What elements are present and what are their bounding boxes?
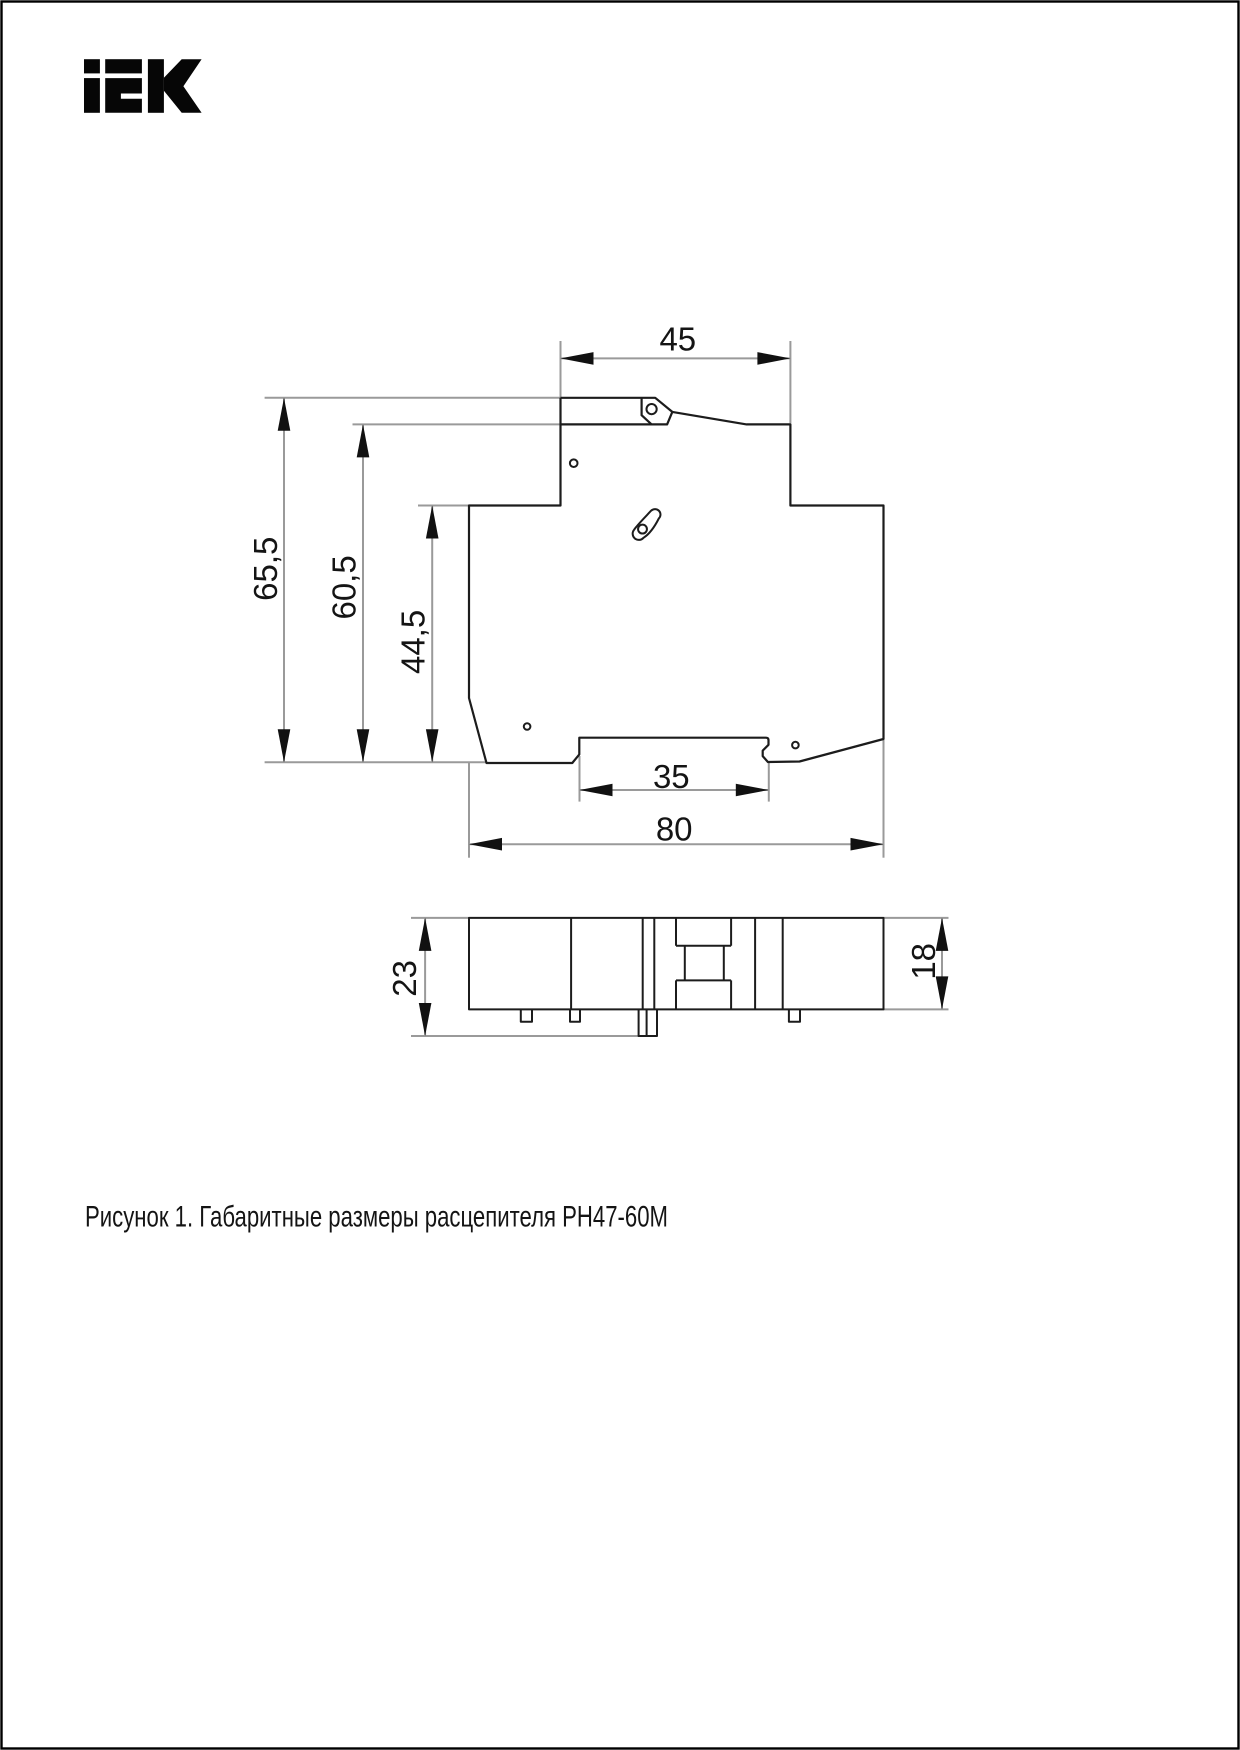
svg-text:45: 45 — [659, 321, 696, 358]
svg-text:Рисунок 1. Габаритные размеры: Рисунок 1. Габаритные размеры расцепител… — [85, 1201, 668, 1234]
svg-text:80: 80 — [656, 810, 693, 847]
svg-text:44,5: 44,5 — [395, 610, 432, 674]
svg-text:60,5: 60,5 — [325, 555, 362, 619]
svg-text:65,5: 65,5 — [247, 537, 284, 601]
svg-text:23: 23 — [386, 960, 423, 997]
svg-text:35: 35 — [653, 758, 690, 795]
svg-text:18: 18 — [905, 943, 942, 980]
